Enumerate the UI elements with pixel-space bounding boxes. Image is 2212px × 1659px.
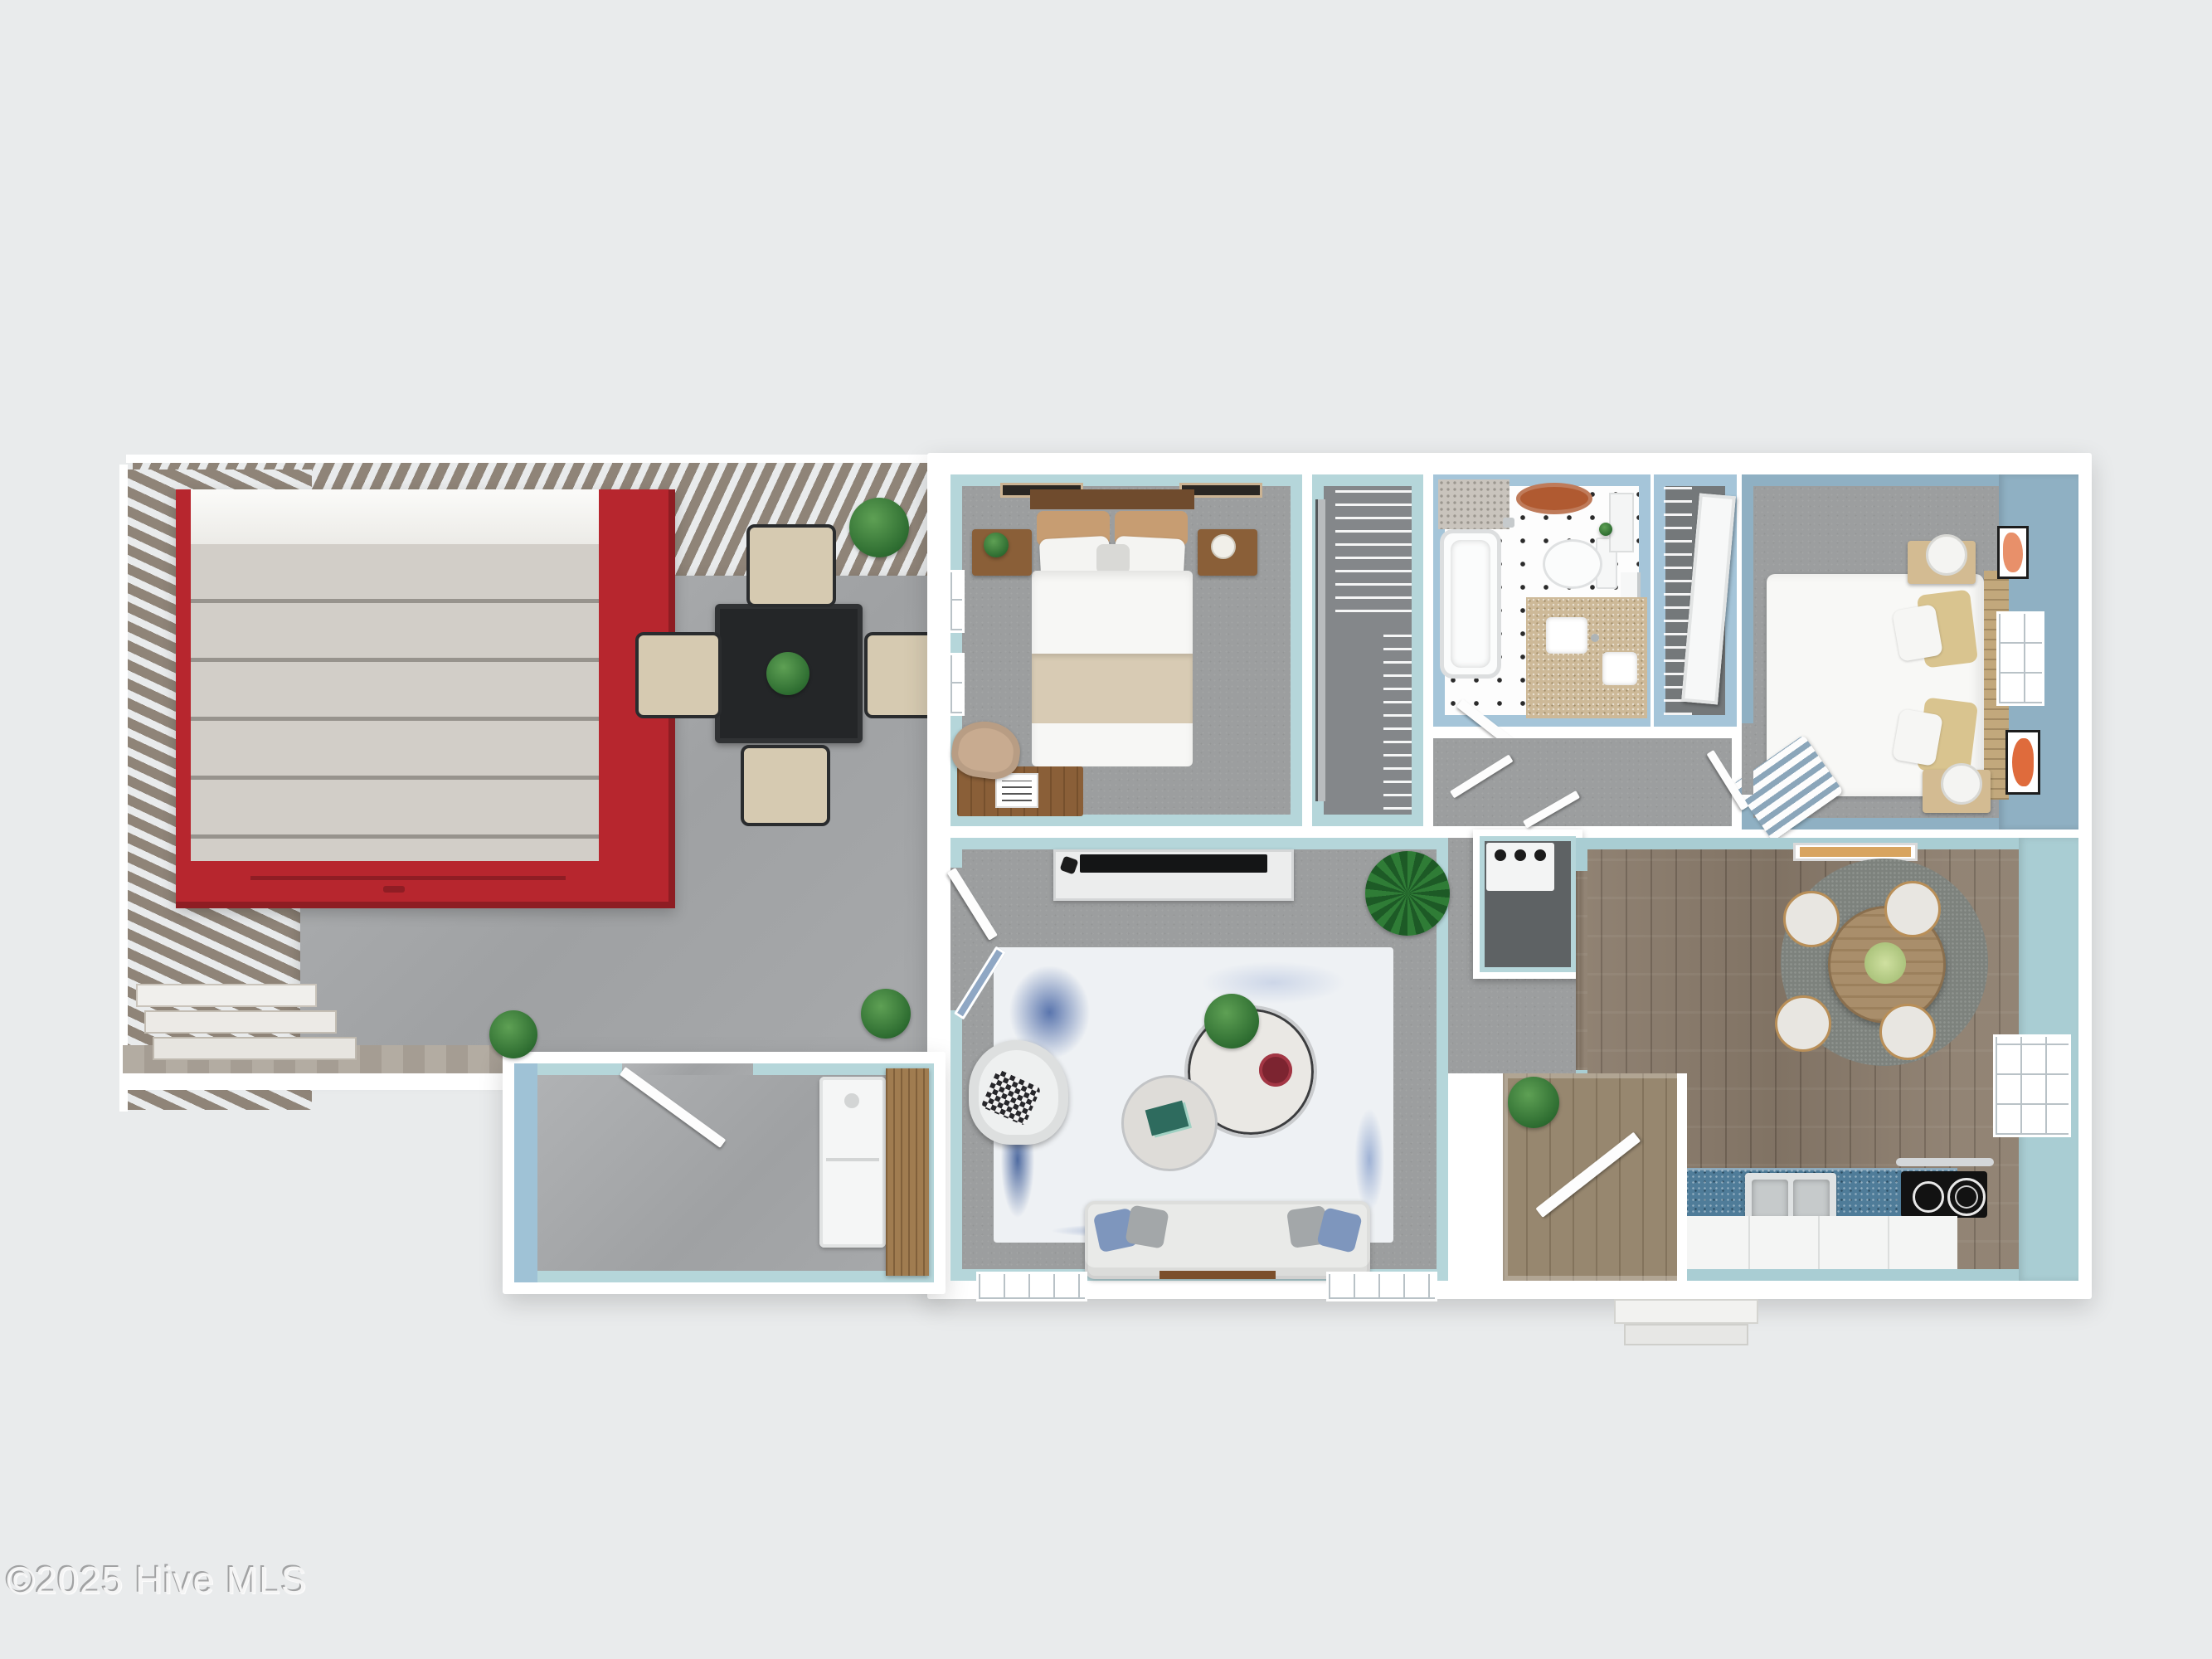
living-window-south-left	[979, 1274, 1085, 1299]
outdoor-chair-north	[746, 524, 836, 607]
room-hall-closet	[1654, 474, 1737, 727]
dining-chair	[1775, 995, 1831, 1052]
wall-art-frame	[1997, 526, 2029, 579]
shed-roof-shingles	[191, 544, 599, 861]
outdoor-dining-table	[715, 604, 863, 743]
sofa-pillow-blue	[1316, 1207, 1363, 1253]
room-bedroom-2	[1742, 474, 2078, 829]
palm-plant	[1365, 851, 1450, 936]
washer	[819, 1077, 886, 1248]
water-heater	[1486, 843, 1554, 891]
porch-step	[1624, 1324, 1748, 1345]
cooktop	[1901, 1171, 1987, 1218]
porch-step	[1614, 1299, 1758, 1324]
outdoor-chair-west	[635, 632, 722, 718]
deck-steps	[133, 979, 348, 1078]
faucet	[1591, 634, 1599, 642]
outdoor-chair-south	[741, 745, 830, 826]
dining-chair	[1884, 881, 1941, 937]
knob	[1534, 849, 1546, 861]
sliding-mirror-door	[1315, 499, 1325, 801]
bed-queen	[1030, 489, 1194, 768]
fruit-bowl	[1259, 1053, 1292, 1087]
dining-chair	[1783, 891, 1840, 947]
kitchen-opening-west	[1576, 871, 1587, 1070]
vanity-counter	[1526, 597, 1647, 718]
art-content	[1800, 847, 1911, 857]
kitchen-window-east	[1996, 1037, 2069, 1135]
dining-wall-art	[1793, 843, 1918, 861]
entry-hall-floor	[1503, 1073, 1687, 1281]
laundry-exterior-plant	[489, 1010, 537, 1058]
knob	[1514, 849, 1526, 861]
vanity-sink	[1546, 617, 1587, 654]
room-bathroom	[1433, 474, 1650, 727]
room-walkin-closet	[1312, 474, 1423, 826]
wall-art-frame	[2005, 730, 2040, 795]
nightstand-plant	[984, 533, 1009, 557]
laundry-west-wall-face	[514, 1063, 537, 1282]
washer-door-seam	[826, 1158, 879, 1161]
pillow	[1892, 604, 1943, 662]
mls-watermark: ©2025 Hive MLS	[7, 1558, 307, 1603]
art-abstract	[2012, 738, 2034, 786]
washer-dial	[844, 1093, 859, 1108]
dining-chair	[1879, 1004, 1936, 1060]
nightstand-lamp	[1211, 534, 1236, 559]
bedroom2-door-opening	[1742, 723, 1753, 795]
bathtub	[1440, 529, 1501, 679]
room-laundry	[514, 1063, 934, 1282]
throw-blanket	[1032, 654, 1193, 723]
bathroom-plant	[1599, 523, 1612, 536]
deck-potted-plant-north	[849, 498, 909, 557]
bedroom1-window-west	[950, 572, 962, 630]
living-window-south-right	[1329, 1274, 1435, 1299]
table-centerpiece-plant	[766, 652, 809, 695]
sink-basin	[1752, 1180, 1788, 1219]
room-bedroom-1	[950, 474, 1302, 826]
room-living	[950, 838, 1448, 1281]
sofa	[1085, 1201, 1370, 1279]
front-door-leaf	[1535, 1132, 1641, 1218]
step	[153, 1037, 357, 1060]
desk-poster	[995, 773, 1038, 808]
sofa-back-shelf	[1159, 1271, 1276, 1279]
bedroom2-window-east	[1999, 614, 2042, 703]
pillow	[1892, 708, 1943, 766]
coffee-table-plant	[1204, 994, 1259, 1048]
hallway-floor	[1433, 738, 1732, 826]
entry-plant	[1508, 1077, 1559, 1128]
burner	[1913, 1181, 1944, 1213]
pillow-accent	[1096, 544, 1130, 574]
art-abstract	[2003, 533, 2023, 572]
deck-wall-top	[126, 455, 939, 463]
bedroom1-window-west2	[950, 655, 962, 713]
closet-wire-shelves	[1383, 624, 1412, 810]
step	[144, 1010, 337, 1034]
shed-door-handle	[383, 886, 405, 893]
shed-roof-ridge	[191, 489, 599, 544]
sink-basin	[1793, 1180, 1830, 1219]
shower-floor	[1438, 479, 1510, 529]
closet-wire-shelves	[1335, 488, 1412, 612]
laundry-counter	[886, 1068, 929, 1276]
dining-centerpiece	[1864, 942, 1906, 984]
step	[136, 984, 317, 1007]
headboard	[1030, 489, 1194, 509]
bedroom1-door-leaf	[1450, 754, 1514, 798]
drum-lamp	[1926, 534, 1967, 576]
shed-door-seam	[250, 876, 566, 880]
laundry-door-leaf	[620, 1067, 726, 1148]
oven-handle	[1896, 1158, 1994, 1166]
sofa-pillow-gray	[1125, 1204, 1169, 1248]
toilet-paper-holder	[1503, 518, 1514, 528]
toilet-bowl	[1543, 539, 1602, 589]
burner	[1947, 1178, 1986, 1216]
floor-plan-render: ©2025 Hive MLS	[0, 0, 2212, 1659]
shed	[176, 489, 675, 908]
wall-cabinet	[1609, 493, 1634, 552]
vanity-sink	[1602, 652, 1637, 685]
laundry-door-opening	[622, 1063, 753, 1075]
drum-lamp	[1941, 763, 1982, 805]
deck-wall-left	[119, 465, 128, 1112]
deck-potted-plant-south	[861, 989, 911, 1039]
entry-kitchen-divider-wall	[1677, 1073, 1687, 1281]
television	[1080, 854, 1267, 873]
mechanical-closet	[1473, 829, 1582, 979]
bath-mat	[1516, 483, 1592, 514]
knob	[1495, 849, 1506, 861]
